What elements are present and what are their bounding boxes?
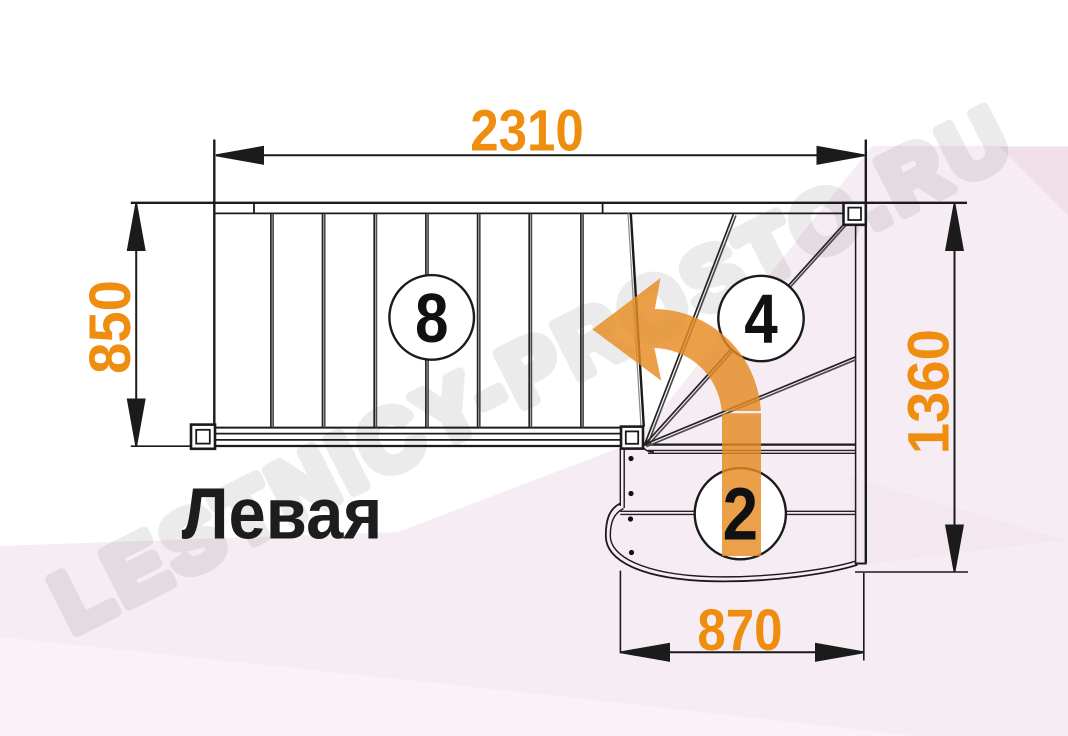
svg-text:2310: 2310 [470,98,584,163]
svg-text:2: 2 [723,473,758,556]
svg-text:8: 8 [415,279,448,357]
svg-text:850: 850 [78,280,143,374]
svg-text:4: 4 [744,280,777,358]
svg-text:870: 870 [697,598,782,663]
svg-text:Левая: Левая [182,473,383,554]
svg-text:1360: 1360 [897,329,962,454]
